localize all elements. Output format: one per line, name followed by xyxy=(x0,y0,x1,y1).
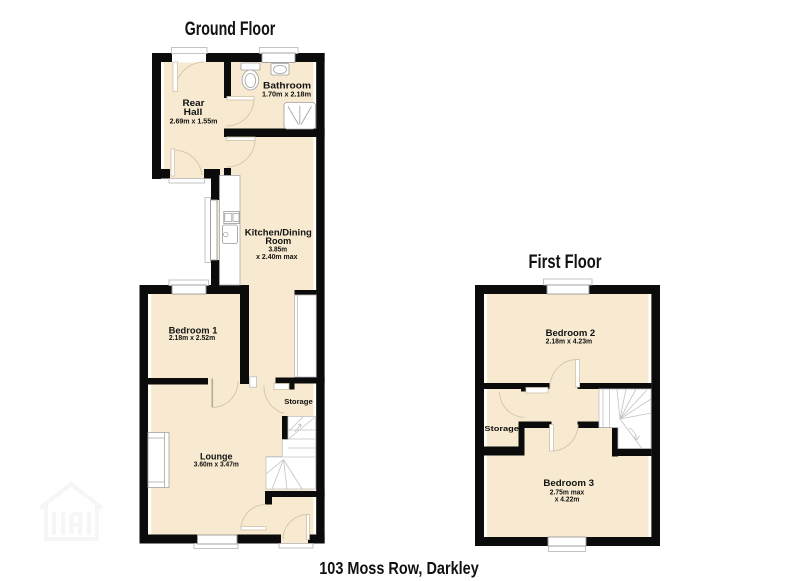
svg-text:Room: Room xyxy=(265,236,291,247)
svg-text:3.60m x 3.47m: 3.60m x 3.47m xyxy=(194,461,239,468)
svg-text:x 2.40m max: x 2.40m max xyxy=(256,254,297,261)
svg-text:Bedroom 3: Bedroom 3 xyxy=(543,478,594,489)
svg-text:x 4.22m: x 4.22m xyxy=(555,497,580,504)
svg-text:First Floor: First Floor xyxy=(529,252,602,273)
svg-text:2.18m x 4.23m: 2.18m x 4.23m xyxy=(546,339,593,346)
svg-text:Bathroom: Bathroom xyxy=(263,81,311,92)
svg-text:1.70m x 2.18m: 1.70m x 2.18m xyxy=(262,92,311,99)
svg-text:103 Moss Row, Darkley: 103 Moss Row, Darkley xyxy=(319,558,479,578)
svg-text:Storage: Storage xyxy=(284,397,313,406)
svg-text:Ground Floor: Ground Floor xyxy=(185,19,276,40)
svg-text:Hall: Hall xyxy=(184,107,203,118)
svg-text:2.75m max: 2.75m max xyxy=(550,489,584,496)
svg-text:Storage: Storage xyxy=(484,424,519,433)
svg-text:3.85m: 3.85m xyxy=(269,247,288,254)
svg-text:2.18m x 2.52m: 2.18m x 2.52m xyxy=(169,335,215,342)
svg-text:2.69m x 1.55m: 2.69m x 1.55m xyxy=(170,119,218,126)
svg-text:Bedroom 2: Bedroom 2 xyxy=(546,328,596,339)
